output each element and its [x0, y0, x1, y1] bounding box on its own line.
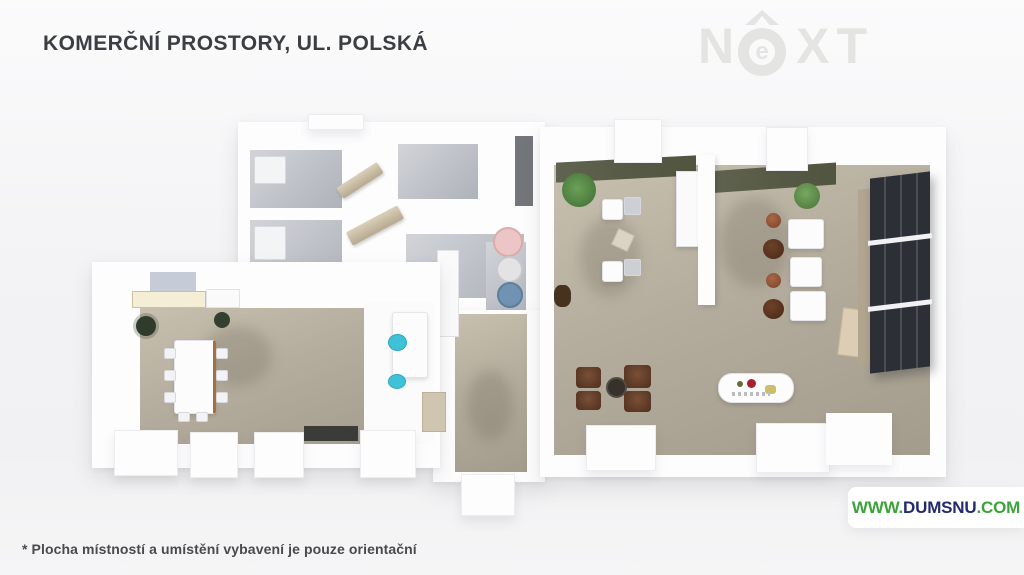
floor-shadow: [580, 217, 640, 297]
door: [336, 162, 383, 199]
chair: [216, 348, 228, 359]
disclaimer-note: * Plocha místností a umístění vybavení j…: [22, 541, 417, 557]
window-tab: [766, 127, 808, 171]
counter-item-dots: [732, 392, 770, 396]
chair: [624, 259, 641, 276]
chair: [216, 370, 228, 381]
palm-plant: [562, 173, 596, 207]
cafe-table: [602, 199, 623, 220]
kitchen-counter: [132, 291, 206, 308]
page-title: KOMERČNÍ PROSTORY, UL. POLSKÁ: [43, 32, 428, 56]
coffee-table-round: [606, 377, 627, 398]
watermark-domain: DUMSNU: [903, 498, 976, 518]
window-tab: [614, 119, 662, 163]
armchair-brown: [576, 367, 601, 388]
stool-terracotta: [766, 273, 781, 288]
logo-letter-e: e: [755, 40, 768, 64]
bay-window: [360, 430, 416, 478]
office-chair-teal: [388, 374, 406, 389]
divider-wall: [698, 155, 715, 305]
kitchen-appliance: [206, 289, 240, 308]
plant: [794, 183, 820, 209]
office-chair-teal: [388, 334, 407, 351]
cabinet-tan: [422, 392, 446, 432]
cafe-table: [602, 261, 623, 282]
floorplan-page: KOMERČNÍ PROSTORY, UL. POLSKÁ N e XT: [0, 0, 1024, 575]
chair: [164, 370, 176, 381]
entry-step: [826, 413, 892, 465]
round-table-pink: [493, 227, 523, 257]
arrow-up-icon: [745, 10, 779, 25]
bay-window: [756, 423, 830, 473]
armchair-brown: [576, 391, 601, 410]
stool-terracotta: [766, 213, 781, 228]
shelf-divider: [868, 299, 932, 312]
chair: [216, 392, 228, 403]
lounge-chair-brown: [763, 239, 784, 259]
logo-letter-n: N: [698, 16, 734, 76]
logo-letters-xt: XT: [796, 16, 874, 76]
counter-item-green: [737, 381, 743, 387]
cabinet: [437, 250, 459, 337]
reception-counter: [718, 373, 794, 403]
bay-window: [190, 432, 238, 478]
side-table: [788, 219, 824, 249]
open-space-block: [540, 127, 946, 477]
chair-dark: [554, 285, 571, 307]
watermark-tld: .COM: [976, 498, 1020, 518]
wall-cap-dark: [515, 136, 533, 206]
bay-window: [586, 425, 656, 471]
round-table-blue: [497, 282, 523, 308]
window-tab: [308, 114, 364, 130]
chair: [196, 412, 208, 422]
wc-room-floor: [398, 144, 478, 199]
plant: [136, 316, 156, 336]
sink: [254, 156, 286, 184]
bay-window: [254, 432, 304, 478]
shelf-divider: [868, 233, 932, 246]
watermark-www: WWW.: [852, 498, 903, 518]
counter-item-red: [747, 379, 756, 388]
side-table: [790, 291, 826, 321]
armchair-brown: [624, 391, 651, 412]
round-table-gray: [496, 256, 523, 283]
doormat-dark: [304, 426, 358, 441]
chair: [624, 197, 641, 215]
chair: [164, 392, 176, 403]
watermark-url: WWW.DUMSNU.COM: [848, 487, 1024, 528]
bay-window: [114, 430, 178, 476]
floor-shadow: [467, 370, 513, 440]
next-logo: N e XT: [698, 16, 874, 76]
circle-icon: e: [738, 28, 786, 76]
lounge-chair-brown: [763, 299, 784, 319]
bookshelf-dark: [870, 171, 930, 373]
chair: [164, 348, 176, 359]
side-table: [790, 257, 822, 287]
logo-ring: e: [738, 16, 786, 76]
door: [346, 205, 404, 245]
chair: [178, 412, 190, 422]
plant: [214, 312, 230, 328]
corridor-block: [433, 310, 545, 482]
sink: [254, 226, 286, 260]
bay-window: [461, 474, 515, 516]
meeting-table: [174, 340, 216, 414]
floorplan-render: [88, 112, 948, 484]
meeting-room-block: [92, 262, 440, 468]
armchair-brown: [624, 365, 651, 388]
